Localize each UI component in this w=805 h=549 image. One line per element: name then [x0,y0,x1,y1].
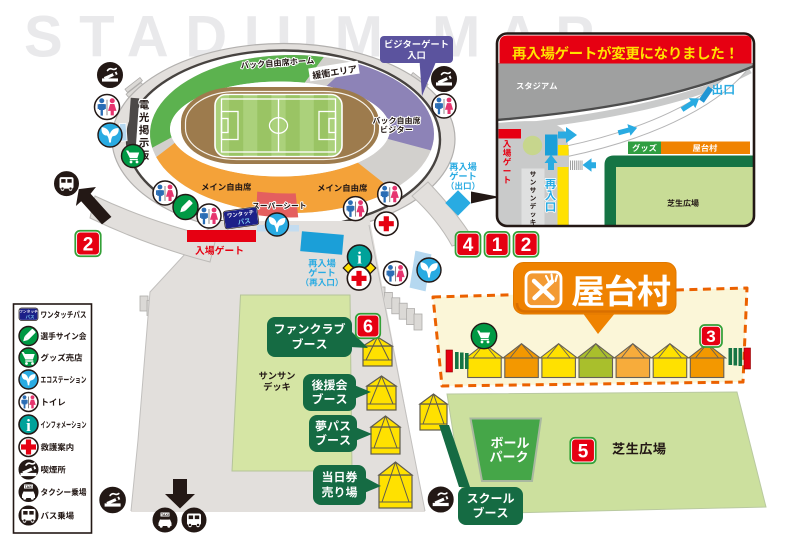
svg-text:TAXI: TAXI [25,485,33,489]
svg-text:2: 2 [521,235,532,256]
svg-text:1: 1 [492,235,503,256]
svg-text:5: 5 [578,441,589,462]
svg-text:2: 2 [83,234,94,255]
svg-text:TAXI: TAXI [161,513,169,517]
svg-text:i: i [26,416,31,435]
svg-text:4: 4 [463,235,474,256]
svg-text:3: 3 [706,327,715,346]
svg-text:i: i [357,249,362,268]
svg-text:6: 6 [363,316,373,336]
